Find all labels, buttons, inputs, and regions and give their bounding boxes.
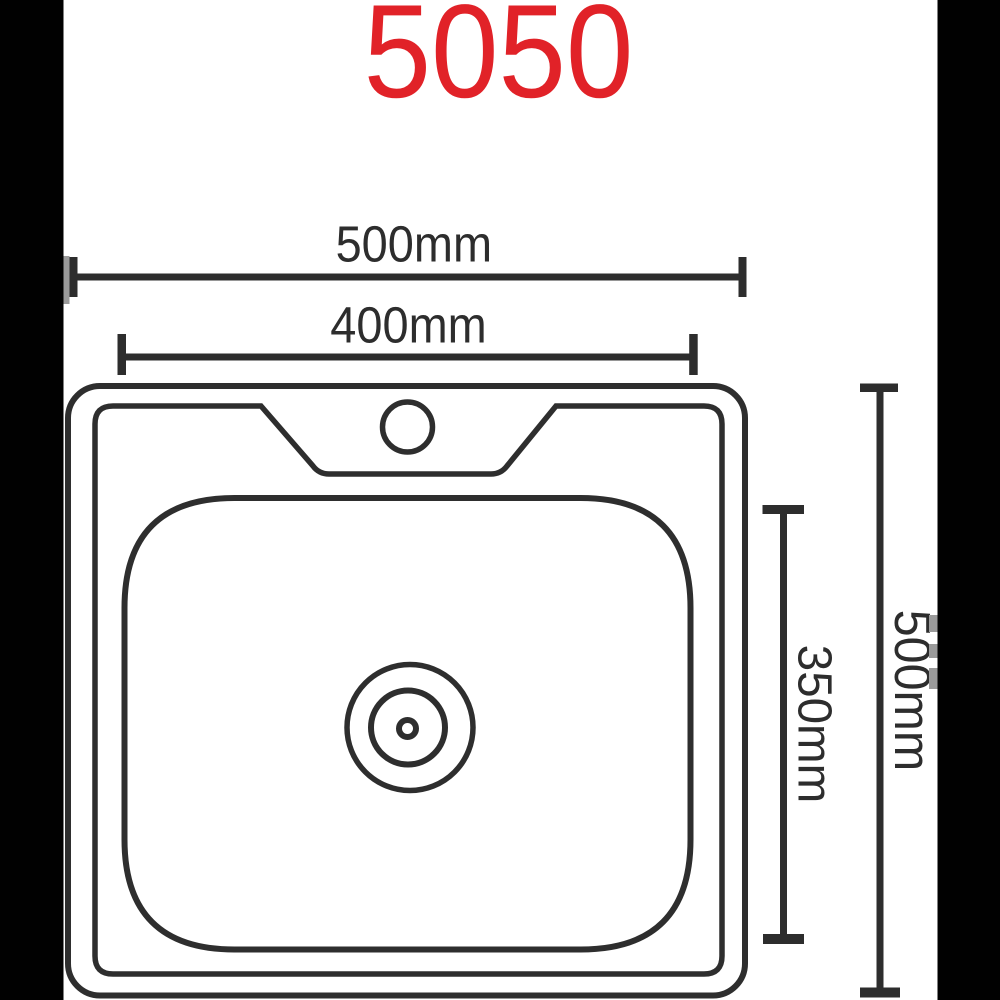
- svg-text:500mm: 500mm: [336, 217, 492, 273]
- svg-text:400mm: 400mm: [330, 298, 486, 354]
- svg-text:5050: 5050: [364, 0, 634, 125]
- svg-text:500mm: 500mm: [884, 610, 941, 772]
- svg-text:350mm: 350mm: [787, 645, 840, 803]
